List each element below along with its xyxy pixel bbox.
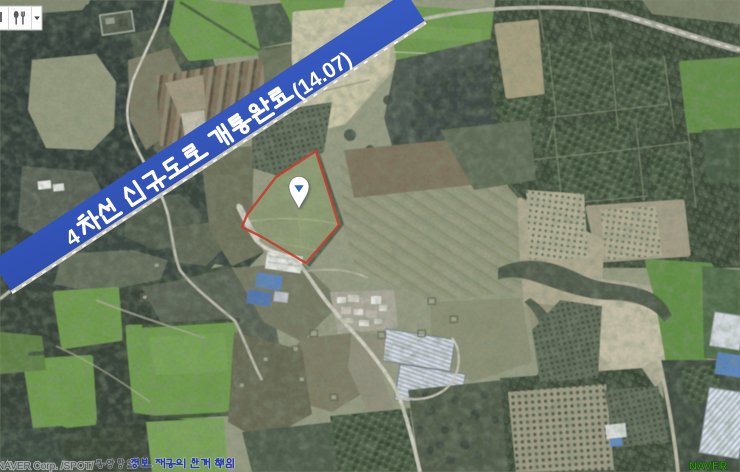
svg-text:NAVER: NAVER: [689, 461, 728, 472]
svg-text:NAVER Corp. /SPOT/: NAVER Corp. /SPOT/: [0, 461, 94, 472]
